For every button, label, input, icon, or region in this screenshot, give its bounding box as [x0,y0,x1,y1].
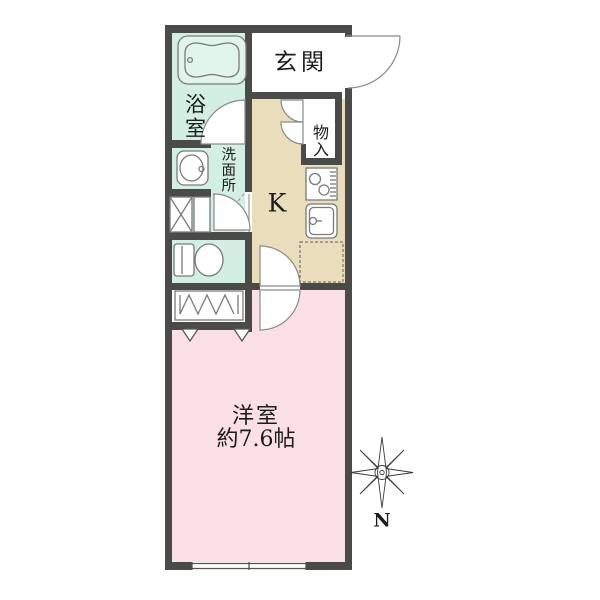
wall-kitchen-room-right [300,283,352,290]
wall-storage-right [335,92,342,165]
kitchen-sink-icon [306,204,337,238]
wall-right [345,88,352,570]
wall-bottom-left [165,562,193,570]
room-label-storage: 物入 [311,124,327,158]
closet-icon [175,291,243,320]
bathtub-icon [178,36,246,84]
wall-washroom [165,189,211,197]
room-label-entrance: 玄関 [274,52,328,75]
wall-toilet-top [165,232,252,240]
room-label-living-room-size: 約7.6帖 [217,429,296,451]
wall-entrance-bottom [245,92,342,99]
compass-icon [351,437,413,508]
room-label-living-room: 洋室 [232,406,280,428]
room-label-washroom: 洗面所 [220,147,235,194]
window-bottom [192,562,306,571]
room-label-kitchen: K [268,191,287,216]
wall-top [165,25,352,33]
washbasin-icon [177,151,208,185]
room-label-bathroom: 浴室 [184,93,205,141]
floor-plan-drawing [0,0,600,600]
wall-right-stub [345,25,352,37]
wall-kitchen-room-left [252,283,260,290]
entrance-door-arc [346,36,400,88]
toilet-icon [174,244,223,276]
compass-north-label: N [373,512,390,531]
wall-bottom-right [306,562,352,570]
wall-left [165,25,172,570]
wall-storage-bottom [301,158,342,165]
floor-plan-page: 玄関 浴室 洗面所 物入 K 洋室 約7.6帖 N [0,0,600,600]
stove-icon [306,168,337,200]
wall-toilet-bottom [165,283,252,290]
washing-machine-pan-icon [170,197,210,232]
